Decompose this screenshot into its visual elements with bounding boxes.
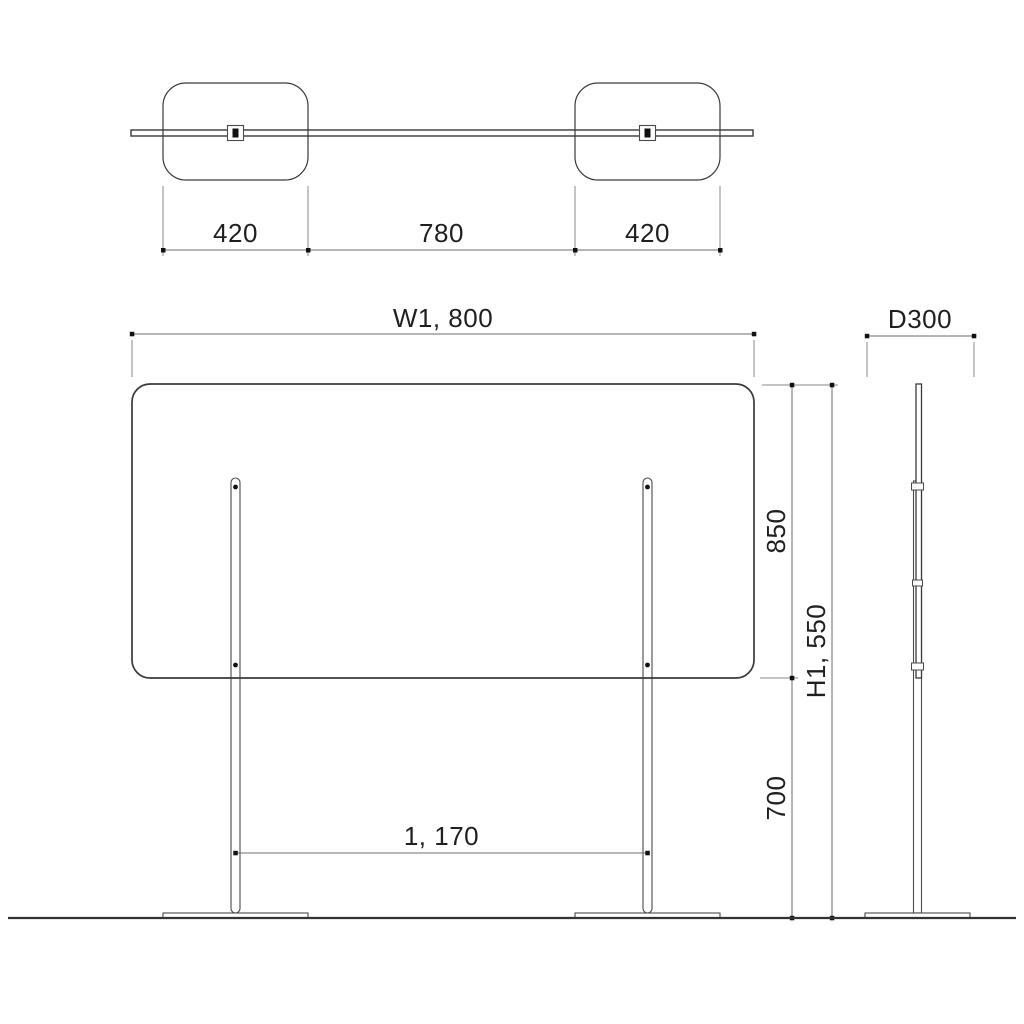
side-view-bottom-bracket: [912, 663, 924, 670]
dim-label-right-base-width: 420: [625, 218, 670, 248]
top-view: 420 780 420: [131, 83, 753, 256]
top-view-right-clamp: [640, 126, 656, 141]
front-view-height-dimensions: 850 700 H1, 550: [760, 383, 838, 921]
dim-label-panel-height: 850: [761, 509, 791, 554]
top-view-panel-bar: [131, 130, 753, 136]
side-view-depth-dimension: D300: [865, 304, 977, 377]
top-view-left-clamp: [228, 126, 244, 141]
front-view-right-leg-bottom-screw: [645, 663, 650, 668]
dim-label-center-span: 780: [419, 218, 464, 248]
front-view-left-leg-bottom-screw: [233, 663, 238, 668]
front-view: W1, 800 1, 170 8: [130, 303, 838, 920]
partition-stand-drawing: 420 780 420 W1, 800: [0, 0, 1024, 1024]
front-view-width-dimension: W1, 800: [130, 303, 757, 377]
front-view-right-leg-top-screw: [645, 485, 650, 490]
side-view-mid-bracket: [913, 580, 923, 586]
technical-drawing-page: 420 780 420 W1, 800: [0, 0, 1024, 1024]
side-view-panel-edge: [916, 384, 922, 678]
front-view-left-leg-top-screw: [233, 485, 238, 490]
front-view-right-leg: [643, 478, 652, 913]
side-view-top-bracket: [912, 483, 924, 490]
dim-label-width: W1, 800: [393, 303, 493, 333]
dim-label-left-base-width: 420: [213, 218, 258, 248]
front-view-leg-span-dimension: 1, 170: [233, 821, 650, 855]
dim-label-total-height: H1, 550: [801, 604, 831, 699]
dim-label-depth: D300: [888, 304, 952, 334]
side-view: D300: [865, 304, 977, 918]
dim-label-leg-height: 700: [761, 776, 791, 821]
dim-label-leg-span: 1, 170: [404, 821, 479, 851]
front-view-panel: [132, 384, 754, 678]
top-view-dimensions: 420 780 420: [161, 186, 723, 256]
front-view-left-leg: [231, 478, 240, 913]
